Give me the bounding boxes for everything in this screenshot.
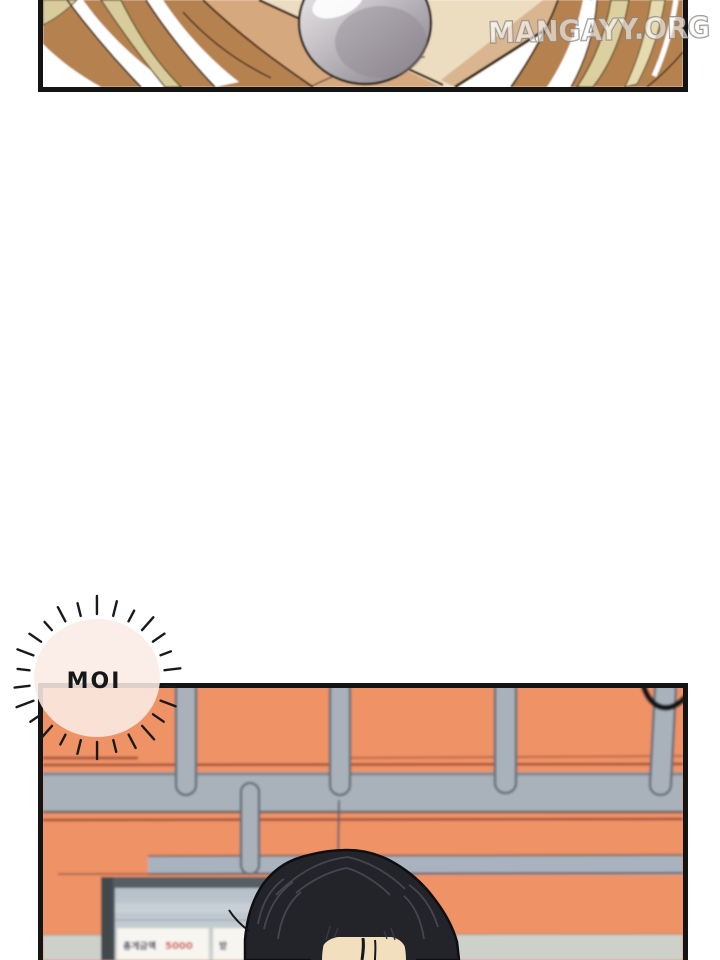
manga-page: MANGAYY.ORG [0, 0, 720, 960]
speech-bubble: MOI [8, 594, 188, 764]
fare-sign-label: 총게금액 [123, 940, 156, 952]
rail-band [43, 772, 683, 813]
speech-bubble-text: MOI [67, 669, 122, 694]
bubble-tick [113, 601, 117, 616]
bubble-tick [113, 740, 116, 752]
bubble-tick [17, 701, 34, 707]
bubble-tick [161, 651, 171, 655]
bubble-tick [78, 603, 81, 616]
bubble-tick [129, 735, 136, 748]
watermark-text: MANGAYY.ORG [488, 10, 711, 50]
bubble-tick [15, 686, 30, 688]
bubble-tick [142, 617, 153, 630]
bubble-tick [77, 740, 80, 754]
hanging-strap-2 [330, 688, 350, 795]
hanging-strap-3 [495, 688, 516, 793]
bubble-tick [165, 686, 176, 687]
bubble-tick [153, 714, 164, 721]
bubble-tick [45, 622, 52, 630]
bubble-tick [60, 735, 65, 745]
bubble-tick [17, 649, 33, 655]
bubble-tick [18, 669, 30, 670]
bubble-tick [153, 634, 165, 642]
bubble-tick [29, 634, 41, 642]
bubble-tick [161, 701, 176, 707]
fare-sign-amount: 5000 [165, 941, 193, 952]
hanging-strap-long [241, 783, 259, 874]
site-watermark: MANGAYY.ORG [477, 0, 718, 59]
bubble-tick [164, 668, 180, 670]
forehead-strand-1 [362, 938, 363, 960]
bubble-tick [129, 611, 135, 622]
bubble-tick [30, 714, 41, 721]
bubble-tick [58, 607, 65, 621]
fare-sign-primary: 총게금액 5000 [117, 928, 209, 960]
fare-sign-secondary-label: 받 [219, 940, 228, 952]
bubble-tick [41, 726, 52, 738]
bubble-tick [142, 726, 154, 739]
